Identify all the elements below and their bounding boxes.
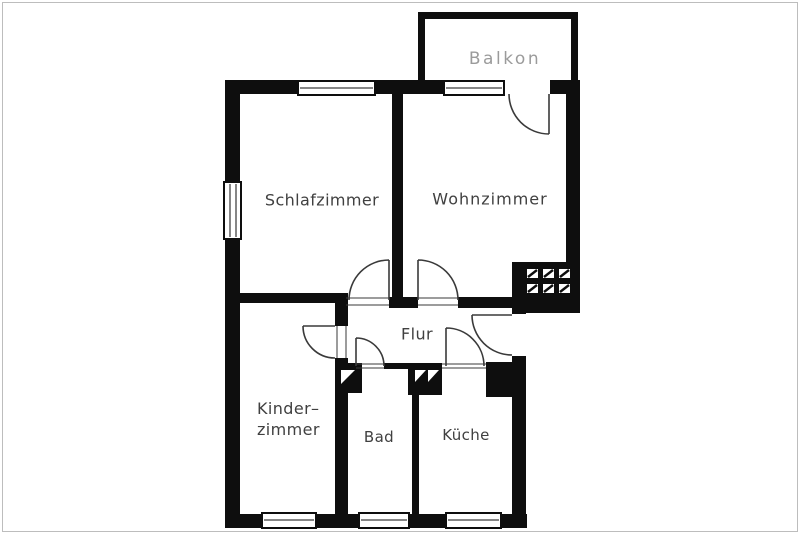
door-schlafzimmer [349, 260, 389, 300]
room-label-schlafzimmer: Schlafzimmer [265, 191, 379, 210]
window-kinderzimmer-bottom [262, 513, 316, 528]
door-bad [356, 338, 384, 366]
wall-flur-top-mid [389, 297, 418, 308]
window-bad-bottom [359, 513, 409, 528]
junction-mark-kinderzimmer [341, 370, 355, 384]
room-label-kueche: Küche [442, 426, 490, 444]
opening-balcony-door [505, 79, 550, 95]
wall-schlafzimmer-kinderzimmer [240, 293, 346, 303]
room-label-flur: Flur [401, 325, 433, 344]
room-label-kinderzimmer-line1: Kinder– [257, 398, 320, 419]
wall-flur-bottom-right [486, 362, 512, 397]
door-balcony [509, 94, 549, 134]
door-kinderzimmer [303, 326, 335, 358]
door-kueche [446, 328, 484, 366]
window-schlafzimmer-top [298, 81, 375, 95]
room-label-kinderzimmer-line2: zimmer [257, 419, 320, 440]
floor-plan: Balkon Schlafzimmer Wohnzimmer Flur Kind… [0, 0, 800, 534]
room-label-kinderzimmer: Kinder– zimmer [257, 398, 320, 440]
room-label-wohnzimmer: Wohnzimmer [432, 190, 547, 209]
wall-flur-top-right [458, 297, 512, 308]
floor-plan-svg [0, 0, 800, 534]
window-wohnzimmer-top [444, 81, 504, 95]
door-wohnzimmer [418, 260, 458, 300]
window-schlafzimmer-left [224, 182, 241, 239]
wall-bad-kueche [412, 395, 419, 514]
room-label-balkon: Balkon [469, 49, 541, 69]
wall-flur-bottom-thin [384, 363, 410, 369]
room-label-bad: Bad [364, 428, 394, 446]
door-entrance [472, 315, 512, 355]
wall-balcony-right [571, 12, 578, 80]
window-kueche-bottom [446, 513, 501, 528]
wall-schlafzimmer-wohnzimmer [392, 94, 403, 302]
wall-balcony-top [418, 12, 578, 19]
wall-balcony-left [418, 12, 425, 80]
opening-entrance-door [511, 314, 527, 356]
wall-outer-left [225, 80, 240, 528]
